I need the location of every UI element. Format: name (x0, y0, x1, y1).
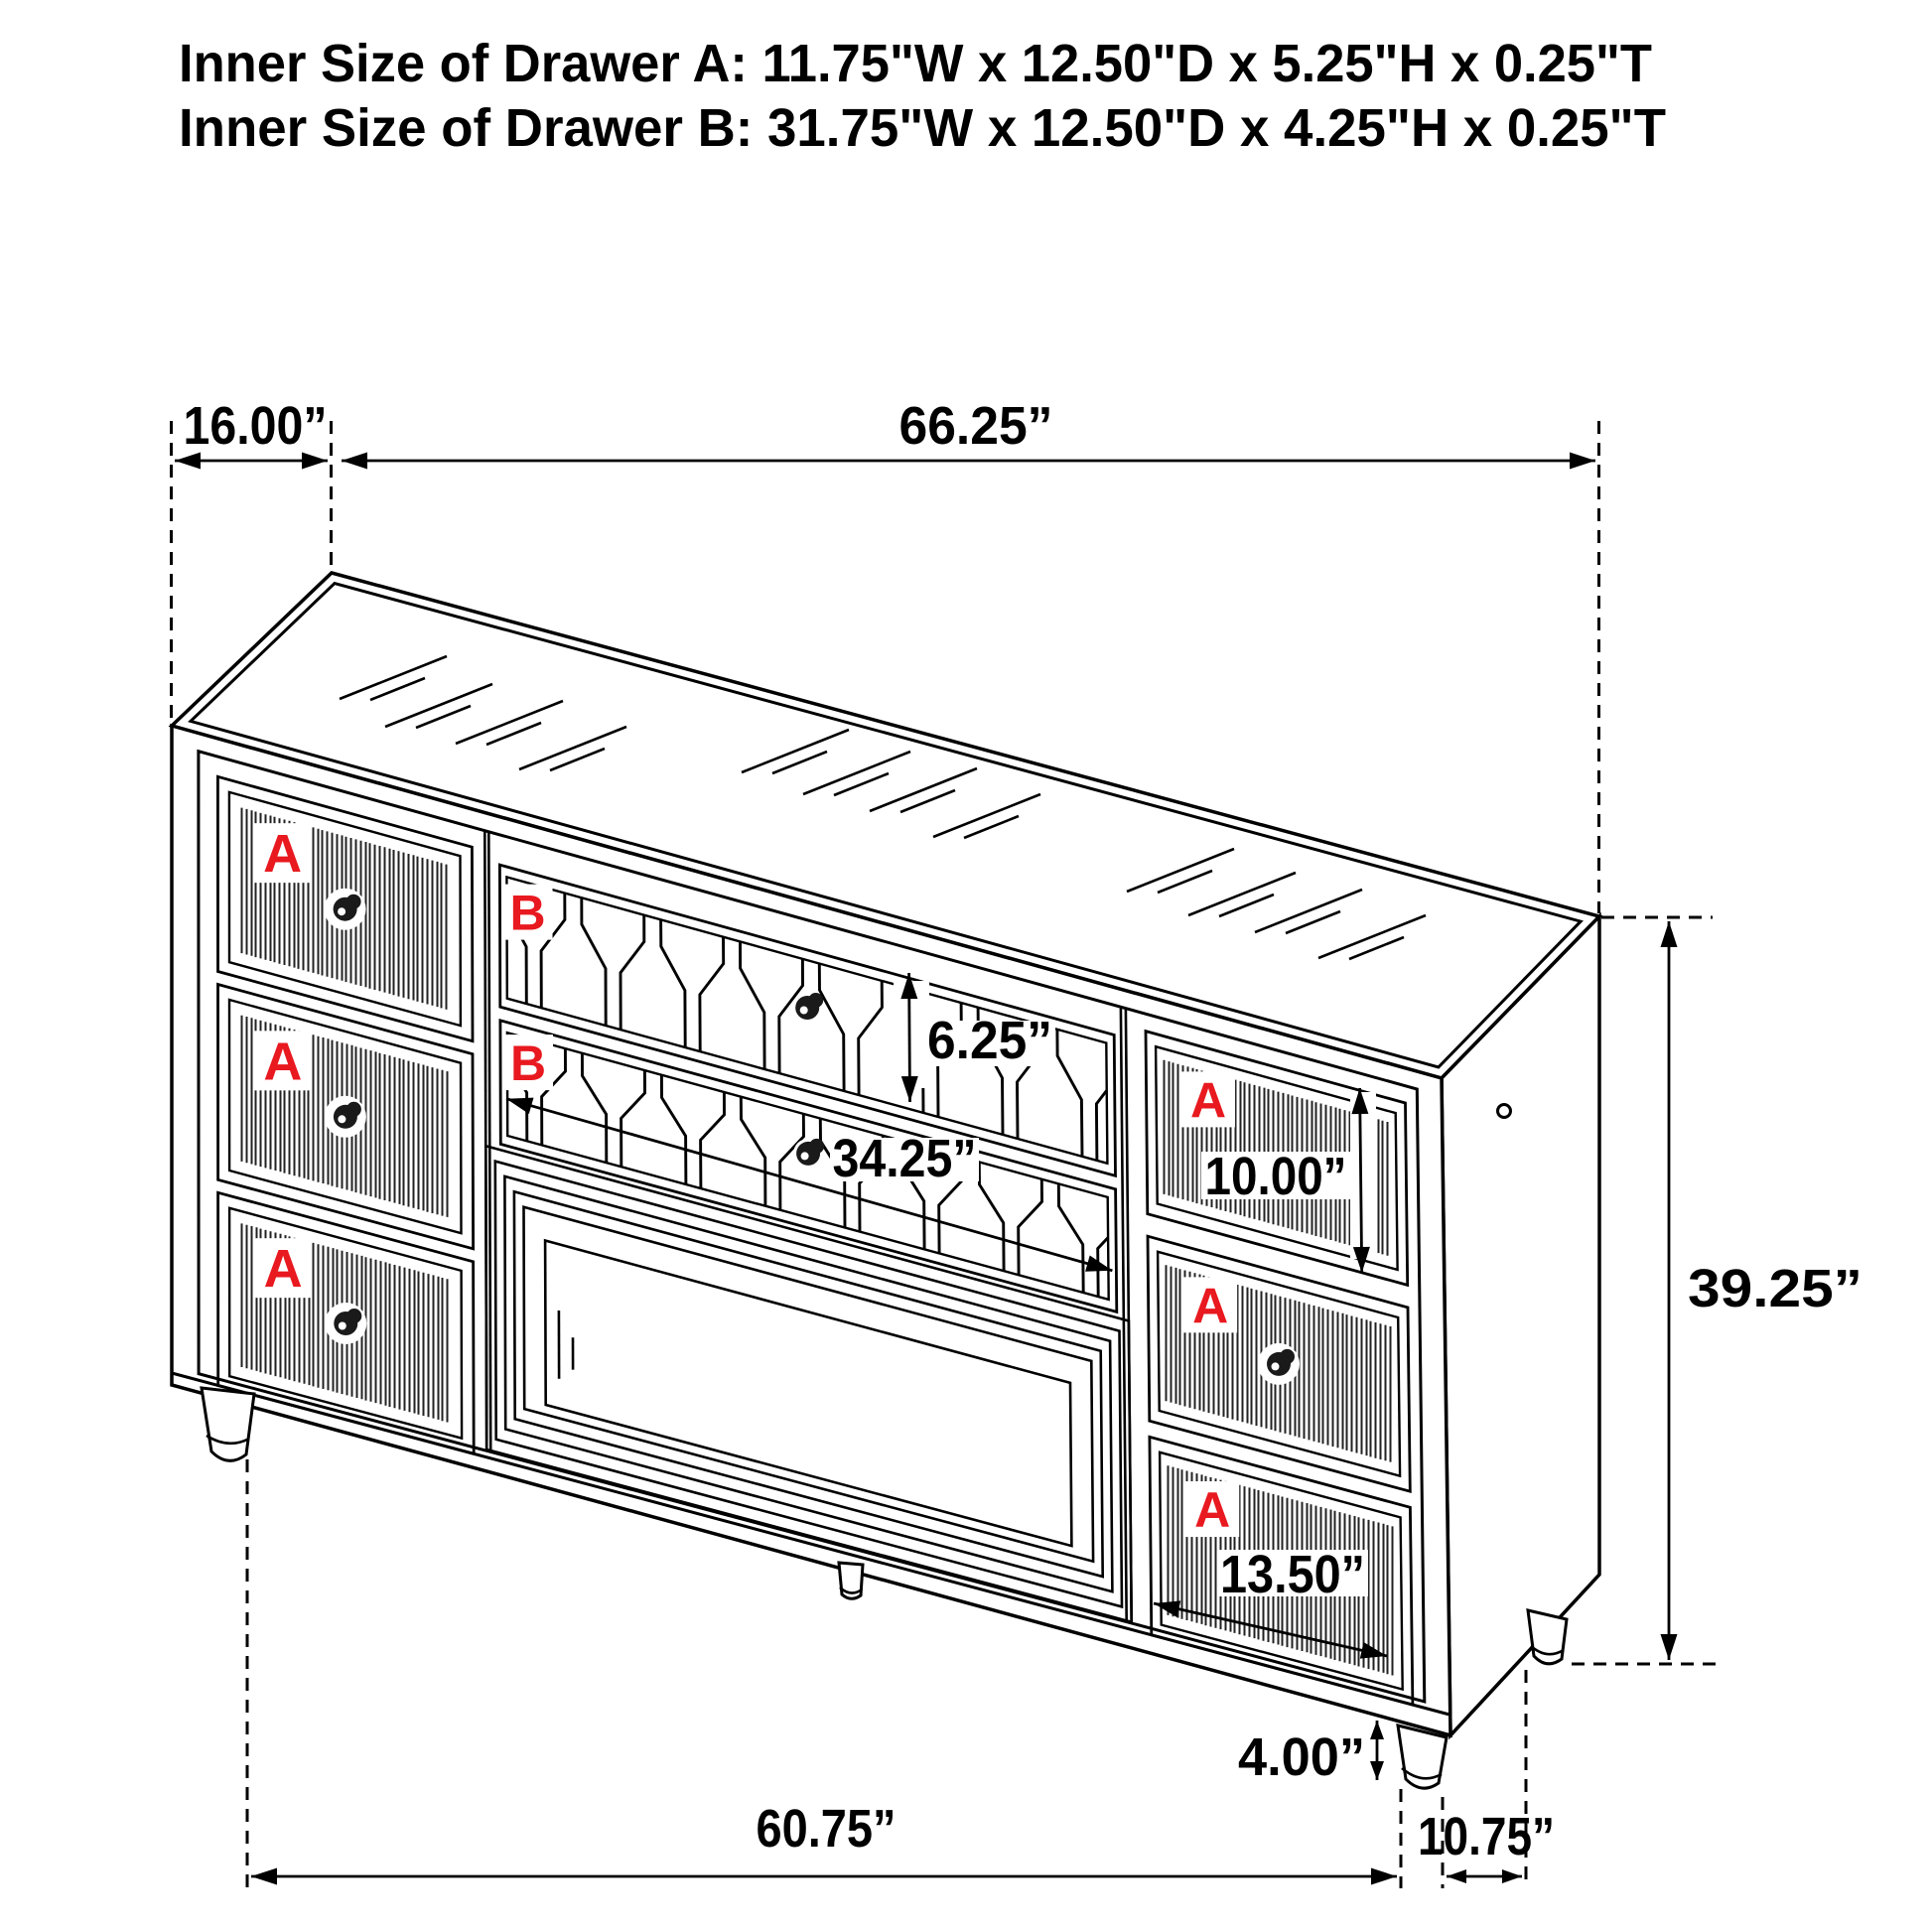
svg-text:4.00”: 4.00” (1238, 1727, 1365, 1787)
svg-text:10.75”: 10.75” (1418, 1807, 1555, 1866)
svg-text:10.00”: 10.00” (1205, 1147, 1347, 1206)
svg-text:60.75”: 60.75” (757, 1799, 897, 1859)
svg-text:16.00”: 16.00” (184, 396, 328, 456)
svg-text:A: A (264, 1239, 303, 1299)
svg-text:34.25”: 34.25” (833, 1129, 977, 1188)
svg-text:A: A (1192, 1278, 1228, 1333)
svg-text:A: A (1190, 1072, 1226, 1128)
svg-text:39.25”: 39.25” (1688, 1259, 1863, 1318)
svg-text:B: B (509, 886, 545, 941)
svg-text:Inner Size of Drawer A: 11.75": Inner Size of Drawer A: 11.75"W x 12.50"… (179, 34, 1652, 93)
svg-text:6.25”: 6.25” (927, 1011, 1052, 1070)
svg-text:B: B (510, 1035, 546, 1091)
svg-text:A: A (1194, 1482, 1230, 1538)
svg-text:A: A (263, 1032, 302, 1091)
svg-text:Inner Size of Drawer B: 31.75": Inner Size of Drawer B: 31.75"W x 12.50"… (179, 98, 1666, 158)
svg-text:13.50”: 13.50” (1220, 1545, 1365, 1604)
svg-text:66.25”: 66.25” (899, 396, 1053, 456)
svg-text:A: A (263, 824, 302, 884)
